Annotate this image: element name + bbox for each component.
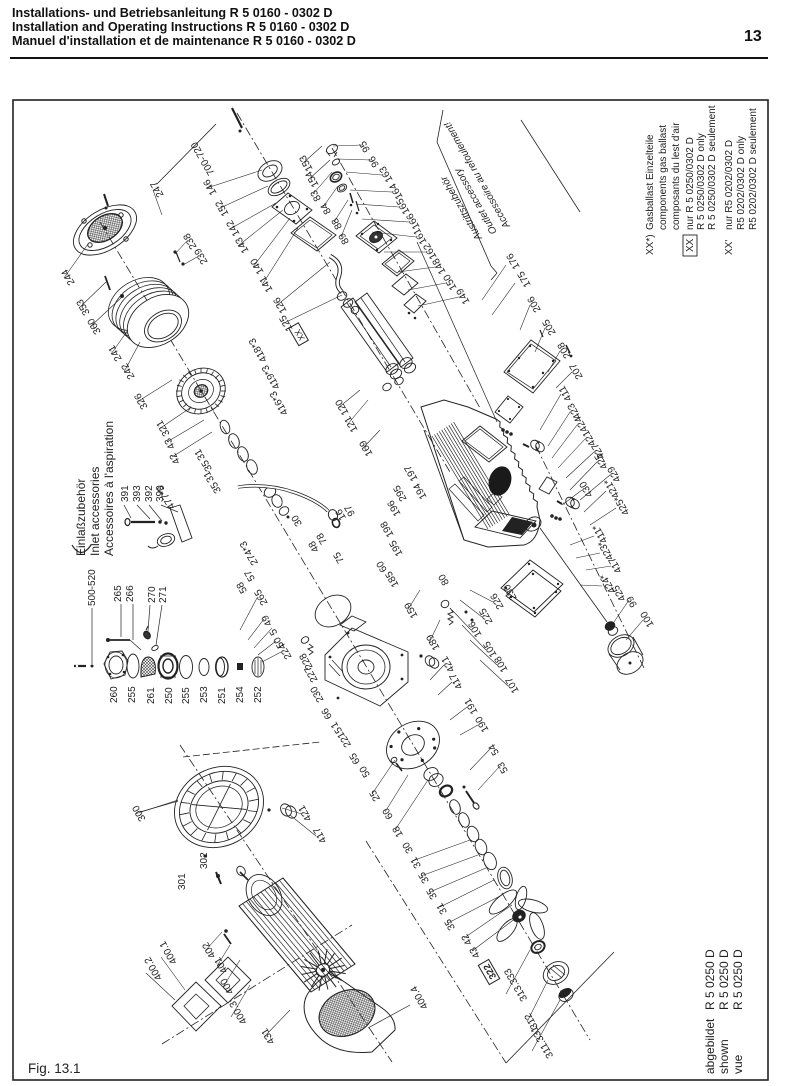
svg-text:31: 31 [409, 854, 424, 870]
svg-text:266: 266 [125, 585, 136, 602]
svg-text:53: 53 [496, 759, 511, 775]
svg-text:400.3: 400.3 [228, 998, 250, 1026]
svg-text:5: 5 [268, 626, 281, 637]
svg-text:R 5 0250/0302 D seulement: R 5 0250/0302 D seulement [707, 105, 718, 230]
svg-text:247: 247 [148, 179, 166, 199]
svg-text:65: 65 [348, 750, 363, 766]
svg-text:265: 265 [252, 587, 270, 607]
svg-text:189: 189 [424, 632, 442, 652]
svg-text:322: 322 [482, 962, 499, 981]
svg-text:311.331: 311.331 [529, 1023, 556, 1060]
svg-text:Fig. 13.1: Fig. 13.1 [28, 1061, 81, 1076]
svg-text:206: 206 [526, 294, 544, 314]
svg-text:57: 57 [243, 567, 258, 583]
svg-text:R5 0202/0302 D seulement: R5 0202/0302 D seulement [748, 108, 759, 230]
svg-text:150: 150 [441, 272, 459, 292]
svg-text:83: 83 [309, 187, 324, 203]
svg-text:30: 30 [401, 839, 416, 855]
svg-text:Einlaßzubehör: Einlaßzubehör [74, 479, 88, 556]
svg-text:402: 402 [200, 940, 218, 960]
svg-text:121: 121 [342, 414, 360, 434]
svg-text:nur R5 0202/0302 D: nur R5 0202/0302 D [724, 140, 735, 230]
svg-text:253: 253 [199, 686, 210, 703]
svg-text:shown: shown [717, 1039, 731, 1074]
svg-text:205: 205 [541, 317, 559, 337]
svg-text:301: 301 [177, 873, 188, 890]
svg-text:190: 190 [473, 714, 491, 734]
svg-text:326: 326 [132, 391, 150, 411]
svg-text:66: 66 [320, 705, 335, 721]
svg-text:430: 430 [578, 479, 596, 499]
svg-text:80: 80 [437, 571, 452, 587]
svg-text:252: 252 [253, 686, 264, 703]
svg-text:XX: XX [292, 327, 306, 342]
svg-text:392: 392 [144, 485, 155, 502]
svg-text:141: 141 [257, 274, 275, 294]
svg-text:260: 260 [109, 686, 120, 703]
svg-text:230: 230 [308, 684, 326, 704]
svg-text:XX': XX' [724, 240, 735, 255]
svg-text:30: 30 [290, 512, 305, 528]
svg-text:50: 50 [358, 763, 373, 779]
svg-text:42: 42 [460, 931, 475, 947]
svg-text:241: 241 [107, 343, 125, 363]
svg-text:261: 261 [146, 687, 157, 704]
svg-text:42: 42 [168, 450, 183, 466]
svg-text:18: 18 [391, 823, 406, 839]
svg-text:142: 142 [224, 218, 242, 238]
svg-text:96: 96 [367, 153, 382, 169]
svg-text:89: 89 [337, 230, 352, 246]
svg-text:416*3: 416*3 [268, 388, 291, 417]
svg-text:54: 54 [487, 741, 502, 757]
svg-text:313.333: 313.333 [502, 966, 530, 1003]
svg-text:Gasballast Einzelteile: Gasballast Einzelteile [645, 134, 656, 230]
svg-text:238: 238 [181, 231, 199, 251]
svg-text:255: 255 [127, 686, 138, 703]
svg-text:197: 197 [402, 463, 420, 483]
svg-text:31: 31 [193, 446, 208, 462]
svg-text:140: 140 [248, 256, 266, 276]
svg-text:60: 60 [375, 558, 390, 574]
svg-text:75: 75 [332, 549, 347, 565]
svg-text:Inlet accessories: Inlet accessories [88, 467, 102, 556]
svg-text:43: 43 [468, 944, 483, 960]
svg-text:components gas ballast: components gas ballast [658, 125, 669, 230]
svg-text:194: 194 [411, 481, 429, 501]
svg-text:R 5 0250 D: R 5 0250 D [703, 949, 717, 1010]
svg-text:270: 270 [147, 586, 158, 603]
svg-text:321: 321 [154, 418, 172, 438]
svg-text:88: 88 [330, 215, 345, 231]
svg-text:107: 107 [504, 675, 522, 695]
svg-text:207: 207 [568, 361, 586, 381]
svg-text:254: 254 [235, 686, 246, 703]
svg-text:255: 255 [181, 687, 192, 704]
svg-text:106: 106 [466, 619, 484, 639]
svg-text:251: 251 [217, 687, 228, 704]
svg-text:176: 176 [505, 251, 523, 271]
svg-text:431: 431 [259, 1026, 277, 1046]
svg-text:152: 152 [213, 198, 231, 218]
svg-text:vue: vue [731, 1054, 745, 1074]
svg-text:49: 49 [260, 612, 275, 628]
svg-text:120: 120 [333, 397, 351, 417]
svg-text:abgebildet: abgebildet [703, 1018, 717, 1074]
svg-text:100: 100 [639, 609, 657, 629]
svg-text:418*3: 418*3 [247, 335, 270, 364]
svg-text:XX*): XX*) [645, 234, 656, 255]
svg-text:195: 195 [387, 538, 405, 558]
svg-text:390: 390 [155, 485, 166, 502]
svg-text:271: 271 [158, 586, 169, 603]
svg-text:163: 163 [377, 164, 395, 184]
svg-text:411: 411 [557, 383, 575, 403]
svg-text:126: 126 [271, 295, 289, 315]
svg-text:25: 25 [368, 787, 383, 803]
svg-text:nur R 5 0250/0302 D: nur R 5 0250/0302 D [685, 137, 696, 230]
svg-text:105: 105 [481, 639, 499, 659]
svg-text:198: 198 [378, 519, 396, 539]
svg-text:169: 169 [357, 438, 375, 458]
svg-text:XX: XX [685, 238, 696, 252]
svg-text:R 5 0250 D: R 5 0250 D [717, 949, 731, 1010]
svg-text:Accessoires à l'aspiration: Accessoires à l'aspiration [102, 421, 116, 556]
svg-text:419*3: 419*3 [260, 362, 283, 391]
svg-text:421: 421 [439, 654, 457, 674]
svg-text:400.2: 400.2 [143, 954, 165, 982]
svg-text:175: 175 [516, 269, 534, 289]
svg-text:R 5 0250 D: R 5 0250 D [731, 949, 745, 1010]
svg-text:360: 360 [86, 316, 104, 336]
svg-text:500-520: 500-520 [87, 569, 98, 606]
svg-text:700-720: 700-720 [189, 139, 217, 177]
svg-text:421: 421 [296, 803, 314, 823]
svg-text:159: 159 [402, 600, 420, 620]
svg-text:265: 265 [113, 585, 124, 602]
svg-text:35: 35 [425, 885, 440, 901]
svg-text:274*3: 274*3 [238, 538, 261, 567]
svg-text:R5 0202/0302 D only: R5 0202/0302 D only [736, 136, 747, 230]
svg-text:400.4: 400.4 [409, 983, 431, 1011]
svg-text:400.1: 400.1 [158, 938, 180, 966]
svg-text:60: 60 [381, 805, 396, 821]
svg-text:31: 31 [435, 900, 450, 916]
svg-text:composants du lest d'air: composants du lest d'air [671, 122, 682, 230]
svg-text:95: 95 [358, 138, 373, 154]
svg-text:391: 391 [120, 485, 131, 502]
svg-text:244: 244 [60, 267, 78, 287]
svg-text:35: 35 [417, 869, 432, 885]
svg-text:353: 353 [75, 297, 93, 317]
svg-text:393: 393 [132, 485, 143, 502]
svg-text:R 5 0250/0302 D only: R 5 0250/0302 D only [696, 133, 707, 230]
svg-text:302: 302 [199, 852, 210, 869]
svg-text:250: 250 [164, 687, 175, 704]
svg-text:191: 191 [462, 696, 480, 716]
